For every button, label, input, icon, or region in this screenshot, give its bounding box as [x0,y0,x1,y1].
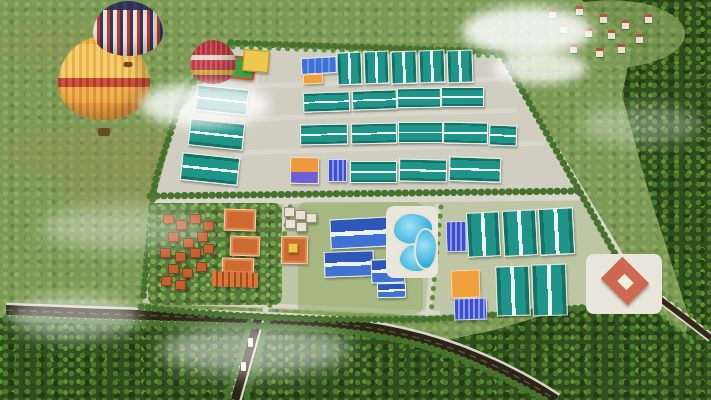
cloud [580,105,700,145]
cloud [492,52,587,84]
cloud [462,6,592,56]
cloud [10,295,140,340]
clouds [0,0,711,400]
cloud [140,82,270,127]
cloud [160,325,350,375]
cloud [40,205,210,250]
aerial-render-industrial-park [0,0,711,400]
